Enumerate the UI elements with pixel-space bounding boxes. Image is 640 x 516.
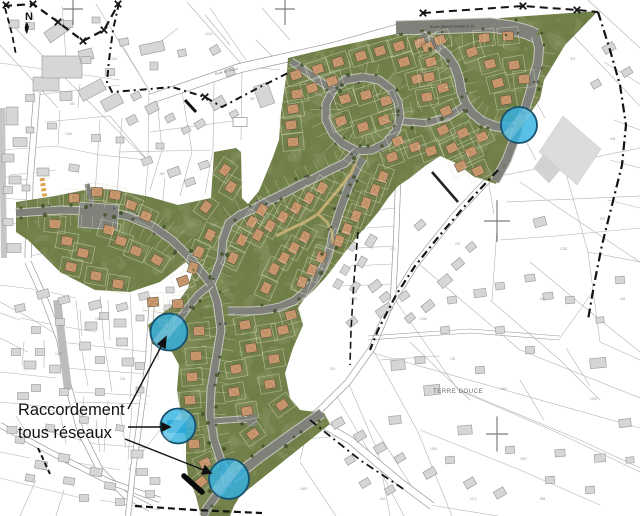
svg-text:1063: 1063 bbox=[430, 447, 437, 451]
svg-text:579: 579 bbox=[600, 217, 606, 221]
svg-text:1225: 1225 bbox=[590, 397, 597, 401]
svg-text:131: 131 bbox=[390, 247, 396, 251]
svg-text:1336: 1336 bbox=[65, 132, 72, 136]
svg-text:367: 367 bbox=[250, 97, 256, 101]
svg-text:1400: 1400 bbox=[300, 487, 307, 491]
svg-text:898: 898 bbox=[540, 497, 546, 501]
svg-text:410: 410 bbox=[380, 497, 386, 501]
svg-text:Raccordement: Raccordement bbox=[18, 401, 125, 419]
svg-text:1171: 1171 bbox=[470, 497, 477, 501]
svg-text:408: 408 bbox=[610, 137, 616, 141]
svg-text:N: N bbox=[25, 11, 33, 23]
svg-text:tous réseaux: tous réseaux bbox=[18, 424, 113, 442]
svg-text:1340: 1340 bbox=[420, 317, 427, 321]
svg-text:1060: 1060 bbox=[500, 387, 507, 391]
svg-text:913: 913 bbox=[330, 367, 336, 371]
svg-text:234: 234 bbox=[120, 377, 126, 381]
svg-text:1214: 1214 bbox=[205, 32, 212, 36]
svg-text:231: 231 bbox=[455, 242, 461, 246]
svg-text:631: 631 bbox=[540, 297, 546, 301]
svg-text:574: 574 bbox=[570, 57, 576, 61]
svg-text:Route départementale D 33: Route départementale D 33 bbox=[430, 24, 474, 29]
svg-text:1381: 1381 bbox=[95, 317, 102, 321]
svg-text:492: 492 bbox=[620, 297, 626, 301]
svg-text:TERRE DOUCE: TERRE DOUCE bbox=[433, 389, 483, 395]
svg-text:1228: 1228 bbox=[560, 247, 567, 251]
svg-text:1313: 1313 bbox=[110, 57, 117, 61]
svg-text:1289: 1289 bbox=[55, 352, 62, 356]
svg-text:587: 587 bbox=[70, 102, 76, 106]
svg-text:1207: 1207 bbox=[520, 457, 527, 461]
svg-text:126: 126 bbox=[450, 357, 456, 361]
svg-text:857: 857 bbox=[160, 172, 166, 176]
svg-text:1075: 1075 bbox=[350, 297, 357, 301]
svg-text:1070: 1070 bbox=[20, 202, 27, 206]
